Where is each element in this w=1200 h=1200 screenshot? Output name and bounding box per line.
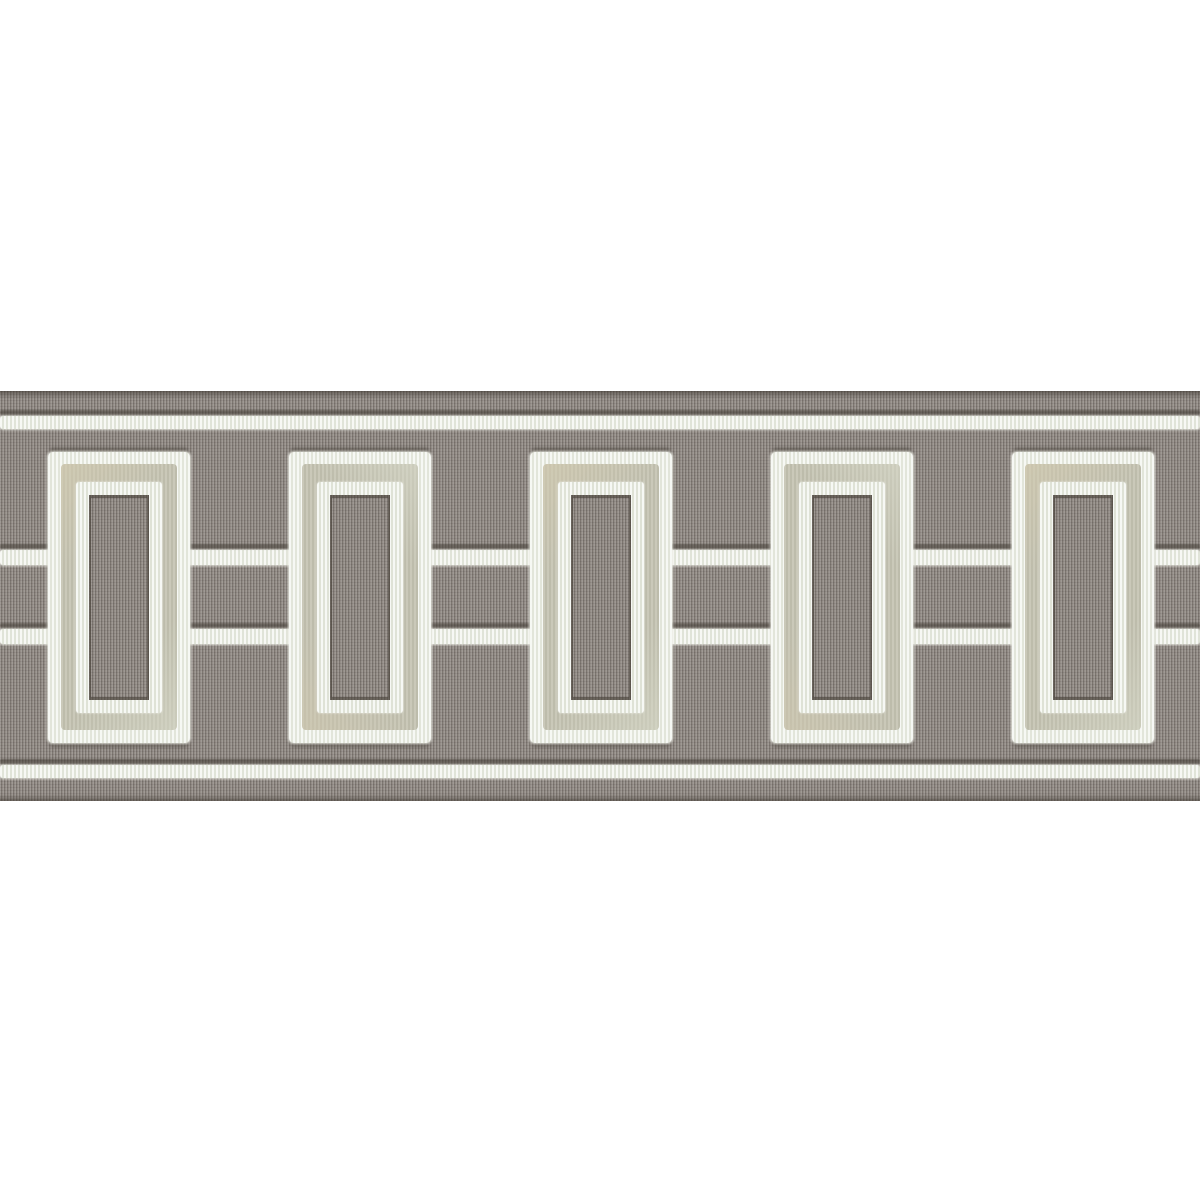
inner-white-stitch-outline (558, 482, 644, 713)
gray-grosgrain-center (812, 495, 872, 700)
embroidered-rectangle-5 (1012, 452, 1154, 743)
gray-grosgrain-center (571, 495, 631, 700)
fabric-trim-photo (0, 0, 1200, 1200)
sage-velvet-frame (1025, 464, 1141, 730)
sage-velvet-frame (61, 464, 177, 730)
sage-velvet-frame (784, 464, 900, 730)
gray-grosgrain-center (89, 495, 149, 700)
embroidered-rectangle-3 (530, 452, 672, 743)
embroidered-line-top-edge (0, 416, 1200, 429)
gray-grosgrain-center (1053, 495, 1113, 700)
gray-grosgrain-center (330, 495, 390, 700)
inner-white-stitch-outline (1040, 482, 1126, 713)
trim-tape (0, 391, 1200, 801)
inner-white-stitch-outline (317, 482, 403, 713)
embroidered-rectangle-1 (48, 452, 190, 743)
inner-white-stitch-outline (799, 482, 885, 713)
sage-velvet-frame (543, 464, 659, 730)
embroidered-line-bottom-edge (0, 765, 1200, 778)
inner-white-stitch-outline (76, 482, 162, 713)
sage-velvet-frame (302, 464, 418, 730)
embroidered-rectangle-4 (771, 452, 913, 743)
embroidered-rectangle-2 (289, 452, 431, 743)
